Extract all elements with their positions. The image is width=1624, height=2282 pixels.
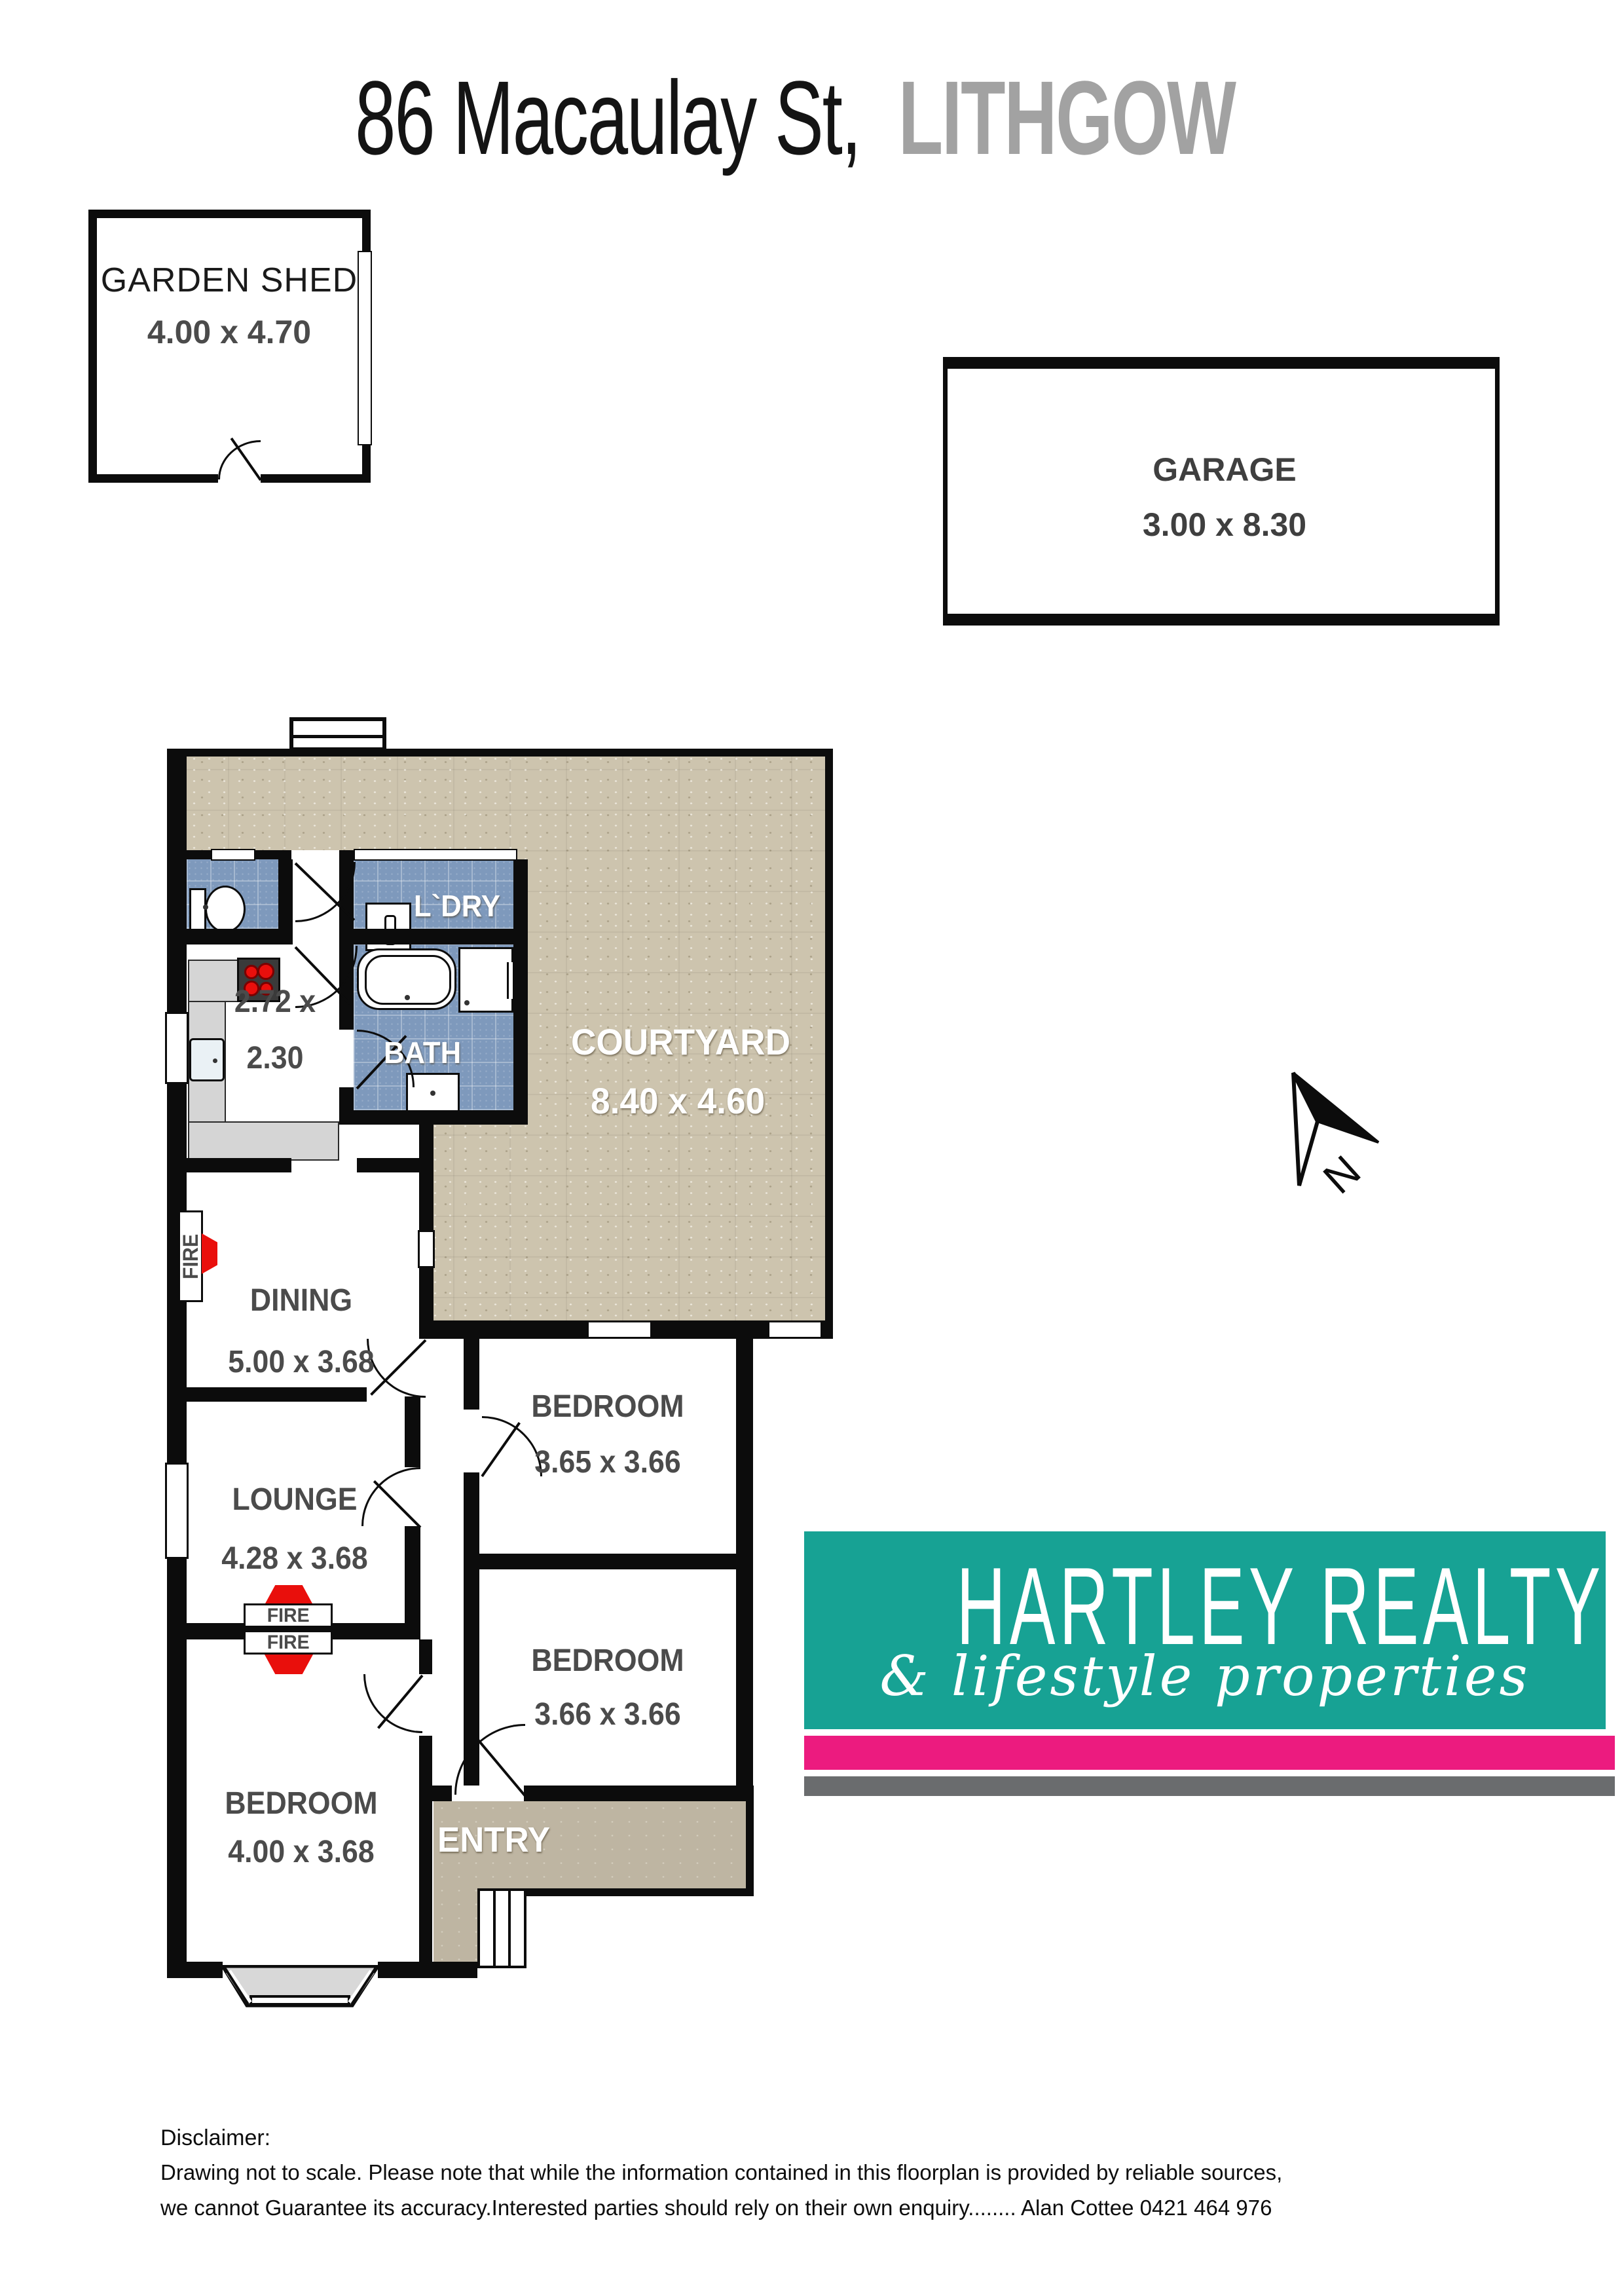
garage-label: GARAGE (1074, 451, 1375, 489)
wall-bath-left (339, 1087, 354, 1110)
bath-label: BATH (384, 1035, 461, 1070)
wall-wet-top (255, 850, 291, 859)
dining-dims: 5.00 x 3.68 (201, 1344, 402, 1380)
kitchen-sink (189, 1038, 225, 1081)
fireplace-lounge-hearth (265, 1585, 313, 1605)
wall-wet-top (187, 850, 211, 859)
entry-label: ENTRY (437, 1820, 550, 1860)
toilet-tank (189, 888, 206, 931)
wall-bottom (167, 1962, 223, 1978)
wall-bed3-right (419, 1736, 432, 1978)
kitchen-dims: 2.72 x (223, 984, 327, 1020)
agency-logo-tagline: & lifestyle properties (804, 1644, 1606, 1708)
wall-top (167, 749, 833, 757)
wall-entry-top (432, 1786, 452, 1801)
page-title: 86 Macaulay St, LITHGOW (238, 58, 1352, 178)
wall-dining-right (419, 1268, 434, 1339)
agency-logo: HARTLEY REALTY & lifestyle properties (804, 1531, 1606, 1729)
kitchen-counter-bottom (188, 1121, 339, 1161)
wall-entry-right (746, 1801, 754, 1896)
bedroom-mid-label: BEDROOM (493, 1643, 722, 1679)
wall-courtyard-right (825, 749, 833, 1339)
wall-courtyard-bottom (652, 1320, 767, 1339)
wall-entry-bottom (524, 1888, 754, 1896)
courtyard-label: COURTYARD (571, 1020, 790, 1063)
wall-bedrooms-left (464, 1339, 479, 1410)
wall-wc-right (278, 859, 293, 929)
bedroom-bottom-label: BEDROOM (198, 1786, 405, 1822)
title-suburb: LITHGOW (879, 59, 1235, 176)
kitchen-window (165, 1012, 189, 1084)
fireplace-bedroom: FIRE (244, 1630, 333, 1655)
entry-steps (477, 1888, 526, 1968)
courtyard-window (767, 1320, 822, 1339)
bedroom-top-dims: 3.65 x 3.66 (493, 1444, 722, 1480)
wc-window (211, 849, 255, 861)
logo-gray-stripe (804, 1776, 1615, 1796)
bedroom-mid-dims: 3.66 x 3.66 (493, 1696, 722, 1732)
dining-window (418, 1230, 435, 1268)
wall-left (167, 749, 187, 1978)
bedroom-top-label: BEDROOM (493, 1389, 722, 1425)
wall-bedrooms-right (736, 1339, 753, 1786)
disclaimer-heading: Disclaimer: (160, 2125, 270, 2151)
wall-dining-right (419, 1125, 434, 1230)
fireplace-lounge: FIRE (244, 1603, 333, 1628)
kitchen-dims: 2.30 (232, 1040, 318, 1076)
fireplace-dining: FIRE (178, 1210, 203, 1302)
fireplace-bedroom-hearth (265, 1655, 313, 1674)
wall-bed-divider (479, 1554, 736, 1569)
lounge-label: LOUNGE (204, 1482, 386, 1518)
wall-wet-bottom (187, 929, 293, 945)
chimney (289, 717, 386, 751)
laundry-label: L`DRY (414, 888, 500, 924)
wall-courtyard-bottom (419, 1320, 587, 1339)
lounge-dims: 4.28 x 3.68 (194, 1541, 396, 1577)
garden-shed-label: GARDEN SHED (98, 261, 360, 300)
wall-lounge-top (187, 1387, 367, 1402)
wall-bottom (378, 1962, 477, 1978)
wall-bed3-right (419, 1639, 432, 1674)
garage (943, 357, 1500, 626)
wall-bath-bottom (339, 1110, 528, 1125)
bay-window (219, 1965, 381, 2012)
shower (458, 947, 513, 1013)
wall-bath-top (339, 929, 528, 945)
disclaimer-line1: Drawing not to scale. Please note that w… (160, 2160, 1282, 2185)
bathtub (357, 948, 456, 1010)
wall-kitchen-bottom (187, 1158, 291, 1172)
wall-wet-top (339, 850, 354, 859)
logo-pink-stripe (804, 1736, 1615, 1770)
lounge-window (165, 1463, 189, 1559)
bedroom-top-window (587, 1320, 652, 1339)
wall-entry-top (524, 1786, 754, 1801)
toilet-bowl (205, 886, 246, 933)
wall-bath-right (513, 859, 528, 1125)
bedroom-bottom-dims: 4.00 x 3.68 (192, 1834, 411, 1870)
laundry-window (354, 849, 517, 861)
garden-shed-dims: 4.00 x 4.70 (98, 313, 360, 351)
title-address: 86 Macaulay St, (355, 59, 860, 176)
bath-vanity (406, 1073, 460, 1112)
courtyard-dims: 8.40 x 4.60 (591, 1079, 765, 1122)
wall-courtyard-bottom (822, 1320, 833, 1339)
wall-hall-left (405, 1396, 420, 1467)
garage-dims: 3.00 x 8.30 (1074, 506, 1375, 544)
dining-label: DINING (210, 1282, 393, 1319)
disclaimer-line2: we cannot Guarantee its accuracy.Interes… (160, 2196, 1272, 2220)
